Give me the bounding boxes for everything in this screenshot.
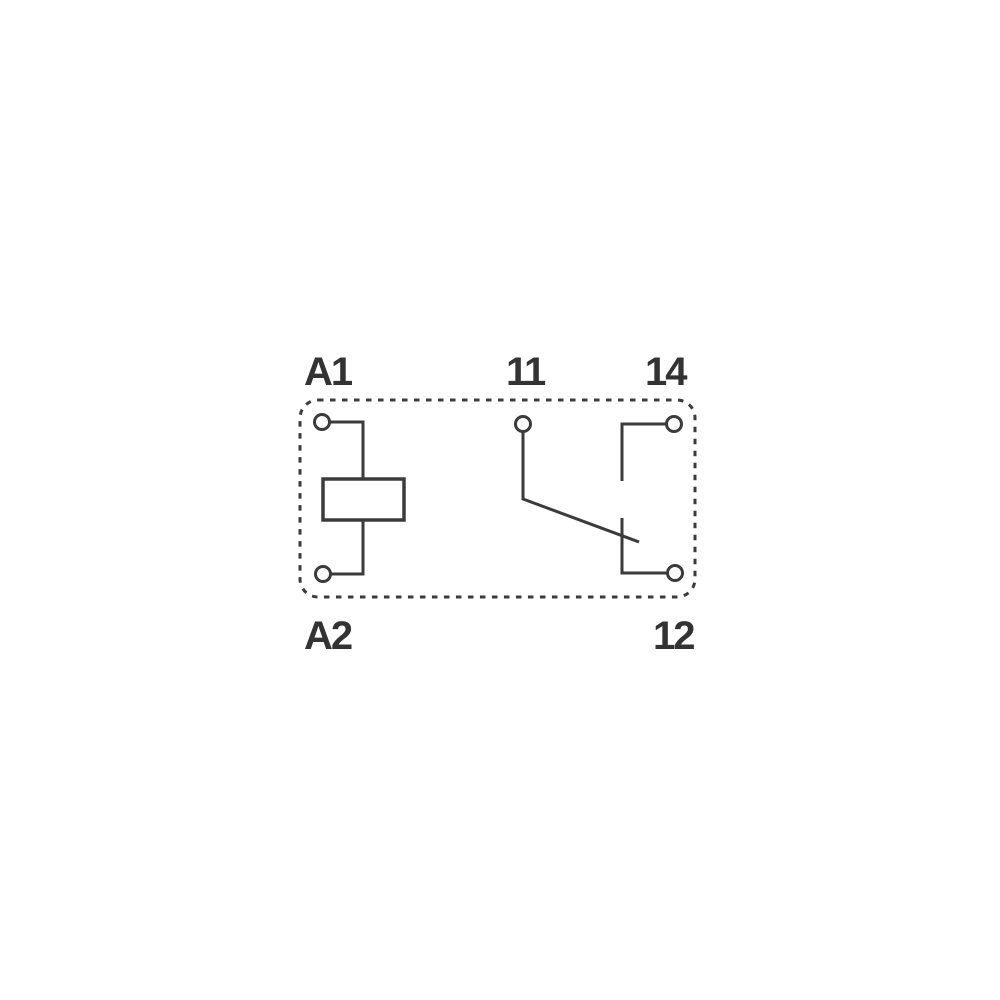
terminal-label-14: 14 [645, 350, 688, 394]
coil-wire-from-a1 [330, 422, 364, 479]
relay-schematic-diagram: A1 11 14 A2 12 [0, 0, 1000, 1000]
terminal-label-a1: A1 [304, 350, 353, 394]
coil-symbol [323, 479, 404, 520]
terminal-pin-a1 [315, 415, 330, 430]
coil-wire-to-a2 [331, 520, 364, 574]
no-contact-wire-14 [622, 424, 667, 481]
schematic-canvas: A1 11 14 A2 12 [0, 0, 1000, 1000]
terminal-pin-a2 [316, 567, 331, 582]
nc-contact-wire-12 [622, 518, 668, 573]
terminal-label-12: 12 [653, 614, 694, 658]
terminal-pin-12 [668, 566, 683, 581]
terminal-label-11: 11 [506, 350, 546, 394]
terminal-pin-14 [667, 417, 682, 432]
terminal-pin-11 [516, 417, 531, 432]
terminal-label-a2: A2 [304, 614, 352, 658]
